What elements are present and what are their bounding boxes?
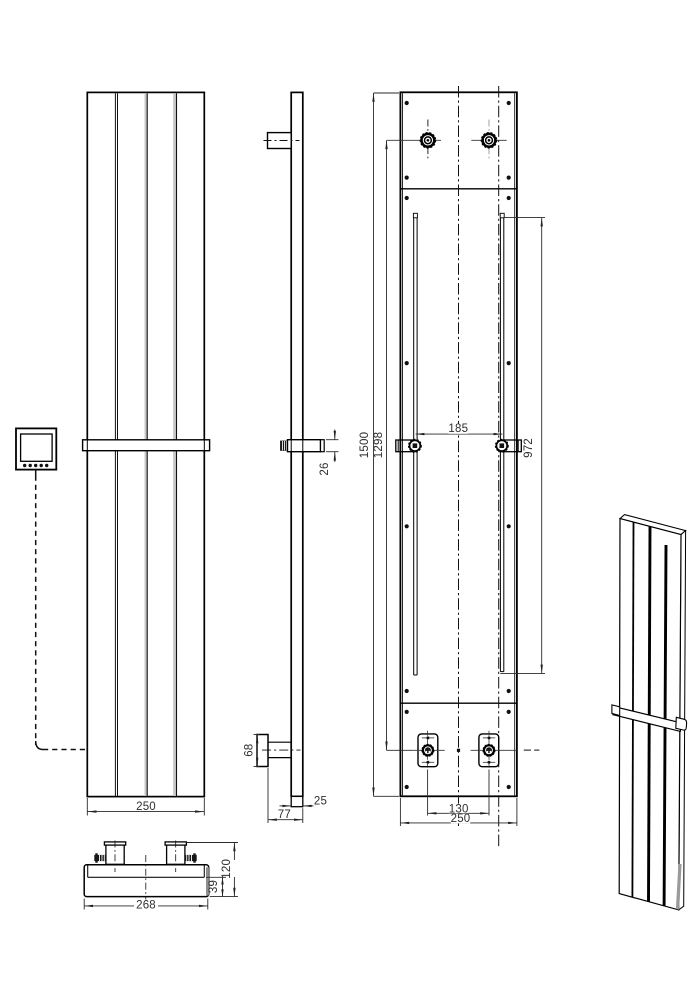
svg-text:250: 250 xyxy=(136,801,156,813)
svg-text:972: 972 xyxy=(523,438,535,458)
svg-text:185: 185 xyxy=(448,423,468,435)
svg-text:26: 26 xyxy=(319,462,331,475)
svg-text:39: 39 xyxy=(208,880,220,893)
svg-text:1298: 1298 xyxy=(373,432,385,458)
svg-text:77: 77 xyxy=(278,809,291,821)
svg-text:120: 120 xyxy=(221,859,233,879)
svg-text:68: 68 xyxy=(244,744,256,757)
svg-text:250: 250 xyxy=(451,813,471,825)
svg-text:1500: 1500 xyxy=(359,432,371,458)
svg-text:25: 25 xyxy=(314,796,327,808)
svg-text:268: 268 xyxy=(136,899,156,911)
